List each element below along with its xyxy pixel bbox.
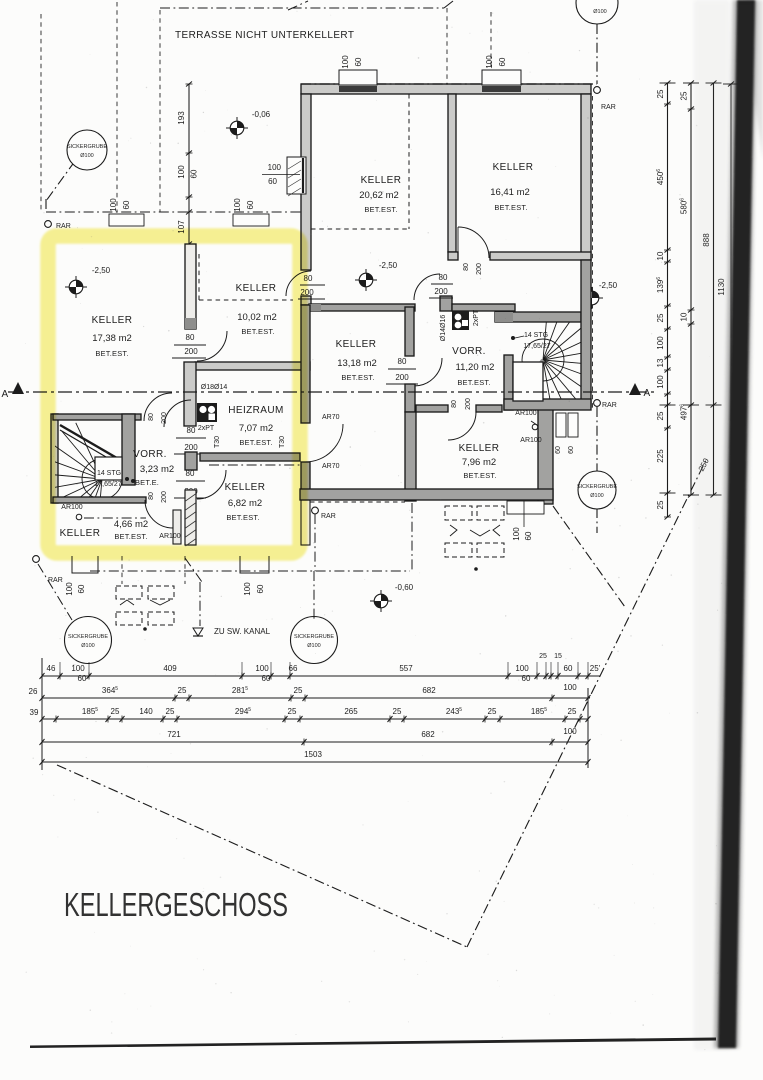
svg-text:100: 100 — [656, 336, 665, 350]
svg-text:100: 100 — [341, 55, 350, 69]
svg-text:60: 60 — [564, 664, 573, 673]
svg-text:80: 80 — [186, 469, 195, 478]
svg-text:TERRASSE NICHT UNTERKELLERT: TERRASSE NICHT UNTERKELLERT — [175, 30, 354, 41]
svg-text:BET.EST.: BET.EST. — [364, 205, 397, 214]
svg-text:46: 46 — [47, 664, 56, 673]
svg-text:3,23 m2: 3,23 m2 — [140, 464, 174, 475]
svg-text:10,02 m2: 10,02 m2 — [237, 312, 277, 323]
svg-text:25: 25 — [656, 89, 665, 98]
svg-text:25: 25 — [488, 707, 497, 716]
svg-text:100: 100 — [177, 165, 186, 179]
svg-text:2xPT: 2xPT — [198, 425, 215, 432]
svg-text:200: 200 — [161, 491, 168, 503]
svg-text:Ø100: Ø100 — [593, 9, 606, 15]
svg-text:HEIZRAUM: HEIZRAUM — [228, 405, 283, 416]
svg-text:14 STG: 14 STG — [524, 332, 548, 339]
svg-text:6,82 m2: 6,82 m2 — [228, 498, 262, 509]
svg-text:13,18 m2: 13,18 m2 — [337, 358, 377, 369]
svg-text:KELLER: KELLER — [459, 443, 500, 454]
svg-text:60: 60 — [524, 531, 533, 540]
svg-text:60: 60 — [522, 674, 531, 683]
svg-text:60: 60 — [78, 674, 87, 683]
svg-text:KELLER: KELLER — [236, 283, 277, 294]
svg-text:BET.EST.: BET.EST. — [463, 471, 496, 480]
svg-text:25: 25 — [568, 707, 577, 716]
svg-text:T30: T30 — [214, 436, 221, 448]
svg-text:80: 80 — [451, 400, 458, 408]
svg-text:200: 200 — [395, 373, 409, 382]
svg-text:KELLER: KELLER — [225, 482, 266, 493]
svg-text:100: 100 — [109, 198, 118, 212]
svg-text:25: 25 — [178, 686, 187, 695]
svg-text:BET.EST.: BET.EST. — [241, 327, 274, 336]
svg-text:721: 721 — [167, 730, 181, 739]
svg-text:25: 25 — [656, 313, 665, 322]
svg-text:11,20 m2: 11,20 m2 — [456, 362, 495, 373]
svg-text:100: 100 — [255, 664, 269, 673]
svg-text:60: 60 — [268, 177, 277, 186]
svg-text:AR100: AR100 — [520, 437, 542, 444]
svg-text:265: 265 — [344, 707, 358, 716]
svg-text:KELLER: KELLER — [493, 162, 534, 173]
svg-text:60: 60 — [256, 584, 265, 593]
svg-text:Ø100: Ø100 — [590, 493, 603, 499]
svg-text:BET.E.: BET.E. — [135, 478, 159, 487]
svg-text:100: 100 — [233, 198, 242, 212]
svg-text:VORR.: VORR. — [452, 346, 486, 357]
svg-text:100: 100 — [268, 163, 282, 172]
svg-text:17,38 m2: 17,38 m2 — [92, 333, 132, 344]
svg-text:200: 200 — [184, 347, 198, 356]
svg-text:200: 200 — [184, 443, 198, 452]
svg-text:ZU SW. KANAL: ZU SW. KANAL — [214, 627, 271, 636]
svg-text:25: 25 — [288, 707, 297, 716]
svg-text:25: 25 — [680, 91, 689, 100]
svg-text:25: 25 — [656, 411, 665, 420]
svg-text:Ø14Ø16: Ø14Ø16 — [440, 315, 447, 342]
svg-text:25': 25' — [590, 664, 601, 673]
svg-text:60: 60 — [262, 674, 271, 683]
svg-text:60: 60 — [568, 446, 575, 454]
svg-text:60: 60 — [190, 169, 199, 178]
svg-text:SICKERGRUBE: SICKERGRUBE — [294, 634, 334, 640]
svg-text:60: 60 — [246, 200, 255, 209]
svg-text:10: 10 — [680, 312, 689, 321]
svg-text:100: 100 — [512, 527, 521, 541]
svg-text:-2,50: -2,50 — [92, 266, 111, 275]
svg-text:SICKERGRUBE: SICKERGRUBE — [68, 634, 108, 640]
svg-text:BET.EST.: BET.EST. — [494, 203, 527, 212]
svg-text:100: 100 — [563, 727, 577, 736]
svg-text:AR70: AR70 — [322, 414, 340, 421]
svg-text:Ø100: Ø100 — [81, 643, 94, 649]
svg-text:200: 200 — [476, 263, 483, 275]
svg-text:60: 60 — [354, 57, 363, 66]
svg-text:KELLER: KELLER — [92, 315, 133, 326]
svg-text:10: 10 — [656, 251, 665, 260]
svg-text:BET.EST.: BET.EST. — [341, 373, 374, 382]
svg-text:193: 193 — [177, 111, 186, 125]
svg-text:2xPT: 2xPT — [473, 309, 480, 326]
svg-text:66: 66 — [289, 664, 298, 673]
svg-text:39: 39 — [30, 708, 39, 717]
svg-text:RAR: RAR — [602, 402, 617, 409]
svg-text:Ø100: Ø100 — [80, 153, 93, 159]
svg-text:100: 100 — [656, 375, 665, 389]
svg-text:Ø18Ø14: Ø18Ø14 — [201, 384, 228, 391]
svg-text:25: 25 — [111, 707, 120, 716]
svg-text:100: 100 — [243, 582, 252, 596]
svg-text:RAR: RAR — [601, 104, 616, 111]
svg-text:BET.EST.: BET.EST. — [457, 378, 490, 387]
svg-text:100: 100 — [563, 683, 577, 692]
svg-text:409: 409 — [163, 664, 177, 673]
svg-text:25: 25 — [393, 707, 402, 716]
svg-text:100: 100 — [485, 55, 494, 69]
svg-text:140: 140 — [139, 707, 153, 716]
svg-text:100: 100 — [515, 664, 529, 673]
svg-text:80: 80 — [186, 333, 195, 342]
svg-text:682: 682 — [421, 730, 435, 739]
svg-text:AR100: AR100 — [159, 533, 181, 540]
svg-text:1503: 1503 — [304, 750, 322, 759]
svg-text:AR100: AR100 — [61, 504, 83, 511]
svg-text:-2,50: -2,50 — [379, 261, 398, 270]
svg-text:SICKERGRUBE: SICKERGRUBE — [577, 484, 617, 490]
svg-text:BET.EST.: BET.EST. — [226, 513, 259, 522]
svg-text:T30: T30 — [279, 436, 286, 448]
svg-text:14 STG: 14 STG — [97, 470, 121, 477]
svg-text:25: 25 — [294, 686, 303, 695]
svg-text:25: 25 — [656, 500, 665, 509]
svg-text:A: A — [1, 389, 8, 400]
svg-text:26: 26 — [29, 687, 38, 696]
svg-text:17,65/27: 17,65/27 — [94, 481, 121, 488]
svg-text:60: 60 — [555, 446, 562, 454]
svg-text:80: 80 — [398, 357, 407, 366]
svg-text:682: 682 — [422, 686, 436, 695]
svg-text:60: 60 — [122, 200, 131, 209]
svg-text:BET.EST.: BET.EST. — [114, 532, 147, 541]
svg-text:KELLER: KELLER — [336, 339, 377, 350]
svg-text:-2,50: -2,50 — [599, 281, 618, 290]
svg-text:RAR: RAR — [321, 513, 336, 520]
svg-text:13: 13 — [656, 358, 665, 367]
svg-text:VORR.: VORR. — [133, 449, 167, 460]
svg-text:200: 200 — [434, 287, 448, 296]
svg-text:80: 80 — [463, 263, 470, 271]
svg-text:100: 100 — [71, 664, 85, 673]
svg-text:4,66 m2: 4,66 m2 — [114, 519, 148, 530]
svg-text:80: 80 — [148, 492, 155, 500]
svg-text:7,96 m2: 7,96 m2 — [462, 457, 496, 468]
svg-text:-0,60: -0,60 — [395, 583, 414, 592]
svg-text:20,62 m2: 20,62 m2 — [359, 190, 399, 201]
svg-text:25: 25 — [166, 707, 175, 716]
svg-text:200: 200 — [161, 412, 168, 424]
svg-text:A: A — [643, 388, 650, 399]
svg-text:25: 25 — [539, 653, 547, 660]
svg-text:AR100: AR100 — [515, 410, 537, 417]
svg-text:60: 60 — [498, 57, 507, 66]
svg-text:16,41 m2: 16,41 m2 — [490, 187, 530, 198]
svg-text:KELLER: KELLER — [361, 175, 402, 186]
svg-text:225: 225 — [656, 449, 665, 463]
svg-text:200: 200 — [465, 398, 472, 410]
svg-text:Ø100: Ø100 — [307, 643, 320, 649]
svg-text:80: 80 — [148, 413, 155, 421]
svg-text:SICKERGRUBE: SICKERGRUBE — [67, 144, 107, 150]
svg-text:80: 80 — [187, 426, 196, 435]
svg-text:60: 60 — [77, 584, 86, 593]
svg-text:100: 100 — [65, 582, 74, 596]
svg-text:BET.EST.: BET.EST. — [239, 438, 272, 447]
svg-text:BET.EST.: BET.EST. — [95, 349, 128, 358]
svg-text:7,07 m2: 7,07 m2 — [239, 423, 273, 434]
svg-text:15: 15 — [554, 653, 562, 660]
svg-text:RAR: RAR — [48, 577, 63, 584]
svg-text:-0,06: -0,06 — [252, 110, 271, 119]
svg-text:557: 557 — [399, 664, 413, 673]
svg-text:AR70: AR70 — [322, 463, 340, 470]
svg-text:17,65/27: 17,65/27 — [523, 343, 550, 350]
svg-text:80: 80 — [439, 273, 448, 282]
svg-text:KELLERGESCHOSS: KELLERGESCHOSS — [64, 886, 288, 923]
svg-text:KELLER: KELLER — [60, 528, 101, 539]
